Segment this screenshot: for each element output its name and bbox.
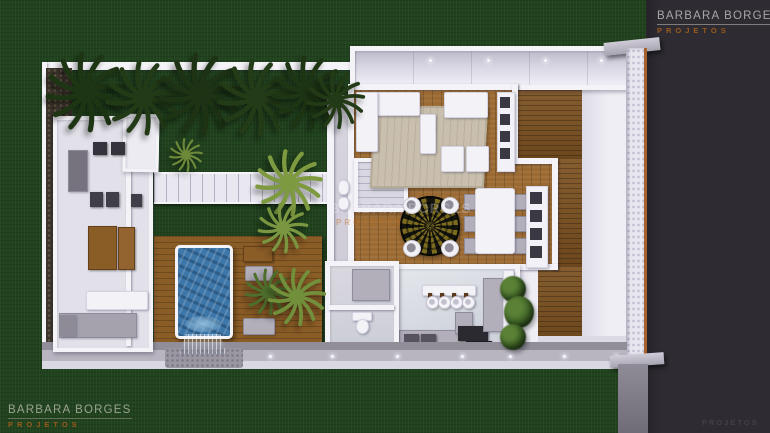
walkway-light (268, 354, 273, 359)
annex-table (88, 226, 117, 270)
wood-deck-lower (538, 266, 582, 338)
annex-credenza (86, 291, 148, 310)
shelf-slot (530, 192, 542, 204)
armchair (466, 146, 489, 172)
shelf-slot (530, 210, 542, 222)
brand-name: BARBARA BORGES (657, 10, 770, 25)
brand-name: BARBARA BORGES (8, 404, 132, 419)
wardrobe (68, 150, 88, 192)
watermark-bottom-right: PROJETOS (702, 419, 759, 428)
annex-window-slot (111, 142, 125, 155)
palm-tree (168, 137, 204, 173)
watermark-top-right: BARBARA BORGES PROJETOS (657, 6, 770, 36)
brand-subtitle: PROJETOS (702, 418, 759, 427)
annex-side-table (118, 227, 135, 270)
pool-steps (185, 316, 221, 332)
annex-seat (106, 192, 119, 207)
walkway-light (330, 354, 335, 359)
shelf-slot (530, 246, 542, 258)
climbing-plant (504, 296, 534, 328)
annex-window-slot (93, 142, 107, 155)
walkway-light (508, 354, 513, 359)
pool-waterfall (180, 334, 226, 354)
toilet-bowl (356, 319, 369, 334)
ceiling-spotlight (428, 58, 433, 63)
shelf-slot (530, 228, 542, 240)
bathroom-divider-wall (328, 305, 394, 310)
ceiling-spotlight (599, 58, 604, 63)
tub-chair (403, 240, 421, 257)
backdrop-panel (646, 0, 770, 433)
living-north-wall (348, 84, 518, 90)
wood-deck-mid (556, 158, 582, 268)
render-canvas: BARBARA BORGES PROJETOS BARBARA BORGES P… (0, 0, 770, 433)
vanity-cabinet (352, 269, 390, 301)
watermark-center: BARBARA BORGES PROJETOS (330, 201, 471, 227)
walkway-light (562, 354, 567, 359)
bar-stool (462, 296, 475, 309)
annex-seat (90, 192, 103, 207)
ceiling-spotlight (543, 58, 548, 63)
palm-tree (305, 69, 367, 131)
side-wall-stub (618, 364, 648, 433)
walkway-light (395, 354, 400, 359)
brand-subtitle: PROJETOS (657, 27, 770, 36)
dining-table (475, 188, 515, 254)
walkway-light (460, 354, 465, 359)
wall-trim (644, 48, 647, 360)
annex-seat (131, 194, 142, 207)
armchair (441, 146, 464, 172)
shelf-slot (500, 114, 510, 125)
hall-fixture (338, 180, 349, 195)
brand-subtitle: PROJETOS (8, 421, 132, 430)
loveseat (444, 92, 488, 118)
shelf-slot (500, 148, 510, 159)
front-wall-face (42, 361, 627, 369)
brand-subtitle: PROJETOS (336, 218, 471, 227)
ceiling-spotlight (486, 58, 491, 63)
brand-name: BARBARA BORGES (330, 201, 471, 217)
climbing-plant (500, 324, 526, 350)
east-patio (582, 90, 626, 352)
annex-appliance (60, 315, 76, 336)
tub-chair (441, 240, 459, 257)
wood-deck-upper (518, 90, 582, 160)
palm-tree (256, 201, 310, 255)
dining-east-wall (552, 158, 558, 270)
shelf-slot (500, 97, 510, 108)
palm-tree (266, 266, 328, 328)
coffee-table (420, 114, 436, 154)
shelf-slot (500, 131, 510, 142)
watermark-bottom-left: BARBARA BORGES PROJETOS (8, 400, 132, 430)
pebble-wall (626, 48, 644, 360)
